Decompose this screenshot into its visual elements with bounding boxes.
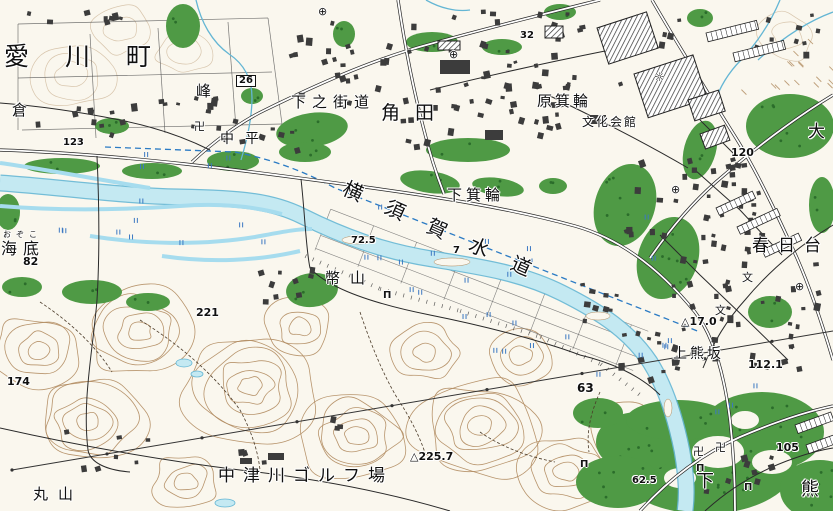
label-kura: 倉 [12,103,27,118]
map-canvas [0,0,833,511]
triangulation-225-7: △225.7 [410,451,453,462]
label-dai: 大 [808,124,825,141]
topographic-map[interactable]: 愛川町 倉 峰 26 下之街道 角田 32 原箕輪 文化会館 大 120 中平 … [0,0,833,511]
temple-icon: 卍 [715,442,726,453]
spot-elevation-174: 174 [7,376,30,387]
shrine-icon: П [580,460,588,470]
triangulation-17-0: △17.0 [681,316,717,327]
spot-elevation-32: 32 [520,31,534,41]
label-hara-minowa: 原箕輪 [537,94,591,109]
spot-elevation-112-1: 112.1 [748,359,783,370]
temple-icon: 卍 [693,446,704,457]
public-facility-icon: ⊕ [318,6,327,17]
label-shimo-minowa: 下箕輪 [447,188,504,203]
label-nakahira: 中平 [220,132,270,146]
spot-elevation-120: 120 [731,147,754,158]
label-shimono-kaido: 下之街道 [291,95,375,110]
public-facility-icon: ⊕ [449,49,458,60]
shrine-icon: П [383,291,391,301]
label-shimo: 下 [696,473,714,491]
factory-icon: ☼ [654,71,665,83]
parcel-number-7: 7 [453,246,460,256]
spot-elevation-62-5: 62.5 [632,476,657,486]
spot-elevation-123: 123 [63,138,84,148]
label-kasugadai: 春日台 [752,238,830,255]
spot-elevation-72-5: 72.5 [351,236,376,246]
furigana-ozoko: おぞこ [3,231,42,239]
post-office-icon: ⊕ [795,281,804,292]
label-town-aikawa: 愛川町 [4,44,187,69]
label-maruyama: 丸山 [33,487,83,502]
post-office-icon: ⊕ [671,184,680,195]
temple-icon: 卍 [194,121,205,132]
label-heisan: 幣山 [325,271,375,286]
label-bunka-kaikan: 文化会館 [582,116,638,128]
label-nakatsugawa-golf: 中津川ゴルフ場 [218,468,393,485]
label-tsunoda: 角田 [381,104,449,123]
route-number-badge: 26 [236,75,256,87]
school-icon: 文 [742,272,753,283]
label-kuma: 熊 [801,481,819,499]
label-kami-kumasaka: 上熊坂 [673,347,724,361]
spot-elevation-221: 221 [196,307,219,318]
spot-elevation-63: 63 [577,382,594,394]
label-mine: 峰 [196,84,211,99]
spot-elevation-105: 105 [776,442,799,453]
spot-elevation-82: 82 [23,256,38,267]
shrine-icon: П [744,483,752,493]
